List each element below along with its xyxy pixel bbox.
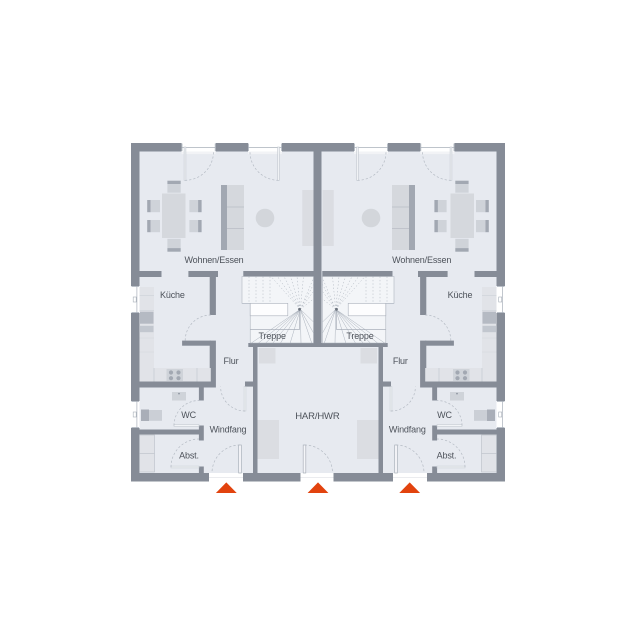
svg-text:Wohnen/Essen: Wohnen/Essen [184, 255, 243, 265]
svg-text:Flur: Flur [393, 356, 408, 366]
svg-text:Flur: Flur [224, 356, 239, 366]
svg-text:Wohnen/Essen: Wohnen/Essen [392, 255, 451, 265]
svg-text:Abst.: Abst. [179, 451, 199, 461]
svg-text:WC: WC [181, 410, 196, 420]
svg-text:Küche: Küche [448, 290, 473, 300]
svg-text:Treppe: Treppe [259, 331, 286, 341]
svg-text:HAR/HWR: HAR/HWR [295, 411, 340, 422]
svg-text:WC: WC [437, 410, 452, 420]
svg-text:Küche: Küche [160, 290, 185, 300]
svg-text:Treppe: Treppe [346, 331, 373, 341]
svg-text:Windfang: Windfang [210, 424, 247, 434]
svg-text:Windfang: Windfang [389, 424, 426, 434]
svg-text:Abst.: Abst. [437, 451, 457, 461]
